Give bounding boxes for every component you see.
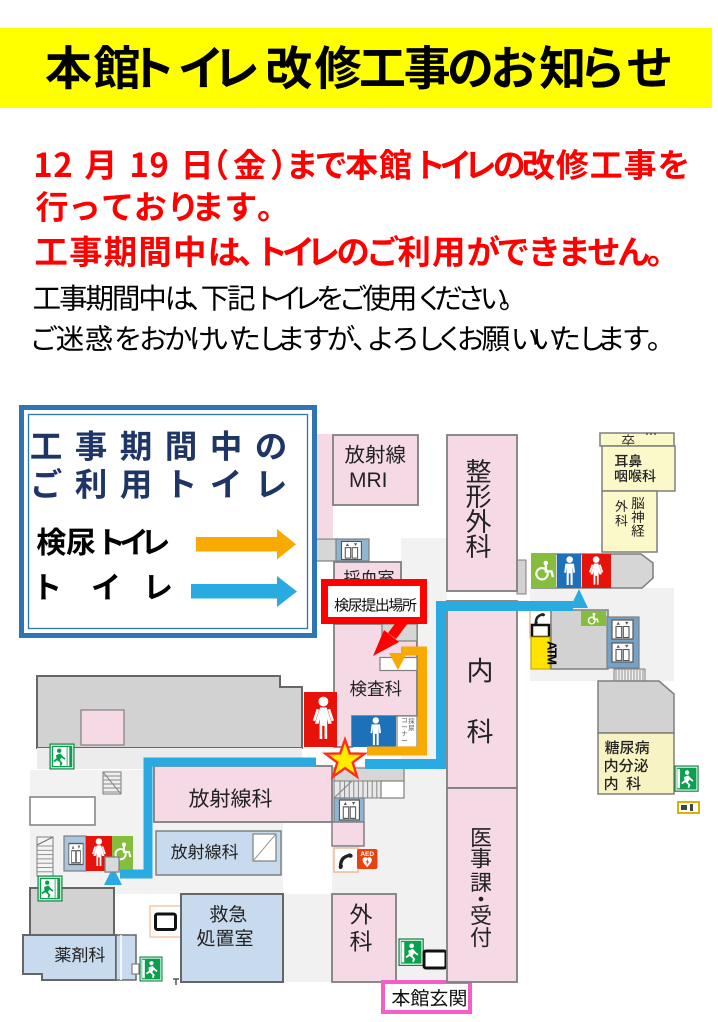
svg-text:MRI: MRI [349, 469, 388, 492]
svg-text:ATM: ATM [545, 641, 560, 665]
